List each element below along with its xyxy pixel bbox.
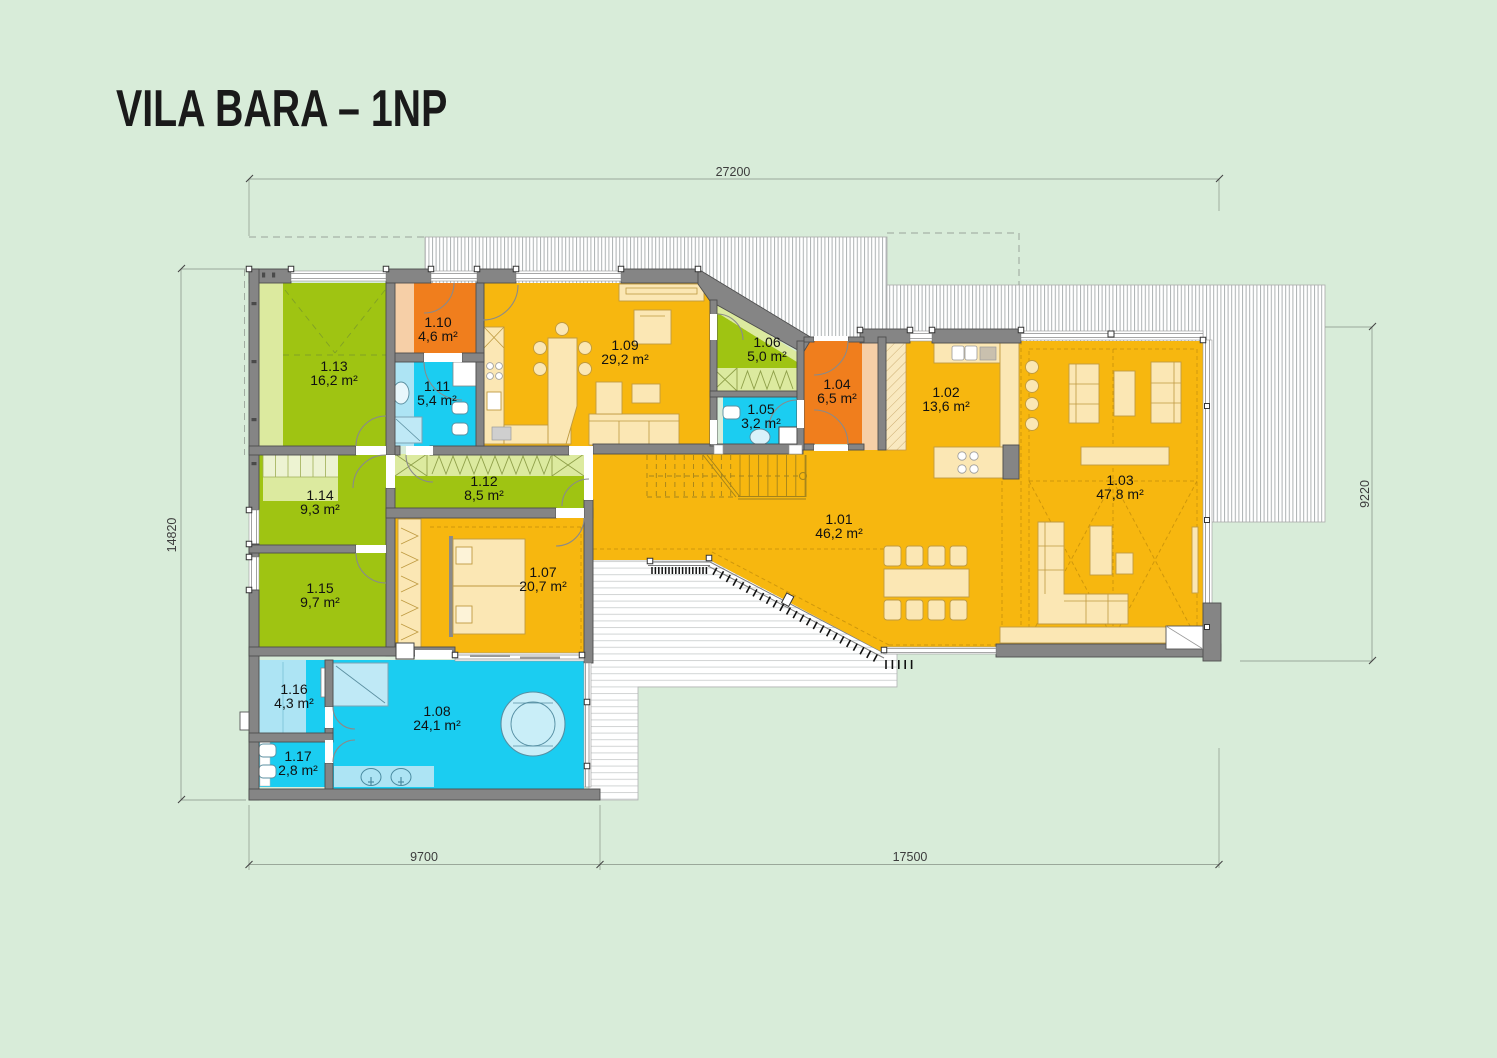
svg-text:24,1 m²: 24,1 m² bbox=[413, 717, 461, 733]
svg-text:9,7 m²: 9,7 m² bbox=[300, 594, 340, 610]
svg-text:6,5 m²: 6,5 m² bbox=[817, 390, 857, 406]
svg-text:3,2 m²: 3,2 m² bbox=[741, 415, 781, 431]
svg-text:27200: 27200 bbox=[716, 165, 751, 179]
svg-text:20,7 m²: 20,7 m² bbox=[519, 578, 567, 594]
svg-text:47,8 m²: 47,8 m² bbox=[1096, 486, 1144, 502]
svg-text:13,6 m²: 13,6 m² bbox=[922, 398, 970, 414]
svg-text:29,2 m²: 29,2 m² bbox=[601, 351, 649, 367]
svg-text:9700: 9700 bbox=[410, 850, 438, 864]
svg-text:4,3 m²: 4,3 m² bbox=[274, 695, 314, 711]
svg-text:8,5 m²: 8,5 m² bbox=[464, 487, 504, 503]
svg-text:9220: 9220 bbox=[1358, 480, 1372, 508]
svg-text:46,2 m²: 46,2 m² bbox=[815, 525, 863, 541]
svg-text:14820: 14820 bbox=[165, 518, 179, 553]
svg-text:5,0 m²: 5,0 m² bbox=[747, 348, 787, 364]
svg-text:9,3 m²: 9,3 m² bbox=[300, 501, 340, 517]
svg-text:4,6 m²: 4,6 m² bbox=[418, 328, 458, 344]
svg-text:2,8 m²: 2,8 m² bbox=[278, 762, 318, 778]
svg-text:16,2 m²: 16,2 m² bbox=[310, 372, 358, 388]
svg-text:5,4 m²: 5,4 m² bbox=[417, 392, 457, 408]
svg-text:17500: 17500 bbox=[893, 850, 928, 864]
